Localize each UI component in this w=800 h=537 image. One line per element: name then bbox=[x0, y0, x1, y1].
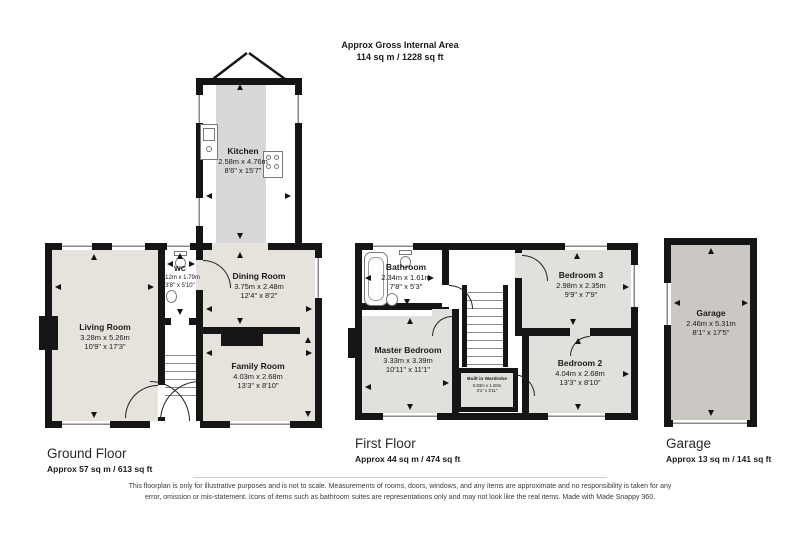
floor-area: Approx 44 sq m / 474 sq ft bbox=[355, 454, 460, 464]
measure-arrow-icon bbox=[365, 384, 371, 390]
floor-title: First Floor bbox=[355, 436, 460, 451]
hob-icon bbox=[274, 155, 279, 160]
window-icon bbox=[112, 243, 145, 250]
room-imperial: 12'4" x 8'2" bbox=[233, 291, 286, 301]
chimney-breast-living bbox=[39, 316, 58, 350]
room-metric: 4.04m x 2.68m bbox=[555, 369, 605, 379]
room-name: Bedroom 3 bbox=[556, 270, 606, 281]
room-label-bedroom3: Bedroom 3 2.98m x 2.35m 9'9" x 7'9" bbox=[556, 270, 606, 300]
room-label-bathroom: Bathroom 2.34m x 1.61m 7'8" x 5'3" bbox=[381, 262, 431, 292]
room-metric: 1.12m x 1.79m bbox=[160, 275, 200, 283]
room-metric: 3.75m x 2.48m bbox=[233, 282, 286, 292]
measure-arrow-icon bbox=[305, 337, 311, 343]
measure-arrow-icon bbox=[177, 309, 183, 315]
room-name: Master Bedroom bbox=[374, 345, 441, 356]
window-icon bbox=[315, 258, 322, 298]
measure-arrow-icon bbox=[91, 412, 97, 418]
measure-arrow-icon bbox=[91, 254, 97, 260]
room-name: Dining Room bbox=[233, 271, 286, 282]
hob-icon bbox=[274, 164, 279, 169]
room-imperial: 8'6" x 15'7" bbox=[218, 166, 268, 176]
sink-icon bbox=[386, 293, 398, 306]
gross-area-title: Approx Gross Internal Area bbox=[0, 39, 800, 51]
measure-arrow-icon bbox=[237, 318, 243, 324]
measure-arrow-icon bbox=[570, 319, 576, 325]
window-icon bbox=[631, 265, 638, 307]
disclaimer-text: This floorplan is only for illustrative … bbox=[125, 482, 675, 504]
window-icon bbox=[167, 243, 190, 250]
room-metric: 2.98m x 2.35m bbox=[556, 281, 606, 291]
wc-door-opening bbox=[171, 318, 189, 325]
room-label-wardrobe: Built in Wardrobe 0.93m x 1.20m 3'1" x 3… bbox=[467, 377, 507, 394]
room-label-garage: Garage 2.46m x 5.31m 8'1" x 17'5" bbox=[686, 308, 736, 338]
room-name: Kitchen bbox=[218, 146, 268, 157]
measure-arrow-icon bbox=[306, 306, 312, 312]
garage-label: Garage Approx 13 sq m / 141 sq ft bbox=[666, 436, 771, 464]
bathroom-door-opening bbox=[442, 285, 449, 307]
window-icon bbox=[196, 95, 203, 123]
measure-arrow-icon bbox=[623, 284, 629, 290]
room-imperial: 13'3" x 8'10" bbox=[555, 378, 605, 388]
room-imperial: 7'8" x 5'3" bbox=[381, 282, 431, 292]
measure-arrow-icon bbox=[674, 300, 680, 306]
room-imperial: 9'9" x 7'9" bbox=[556, 290, 606, 300]
sink-icon bbox=[166, 290, 177, 303]
room-imperial: 3'8" x 5'10" bbox=[160, 283, 200, 291]
measure-arrow-icon bbox=[404, 299, 410, 305]
measure-arrow-icon bbox=[742, 300, 748, 306]
ground-floor-label: Ground Floor Approx 57 sq m / 613 sq ft bbox=[47, 446, 152, 474]
room-name: Family Room bbox=[231, 361, 284, 372]
room-label-dining: Dining Room 3.75m x 2.48m 12'4" x 8'2" bbox=[233, 271, 286, 301]
room-metric: 3.28m x 5.26m bbox=[79, 333, 130, 343]
room-metric: 2.58m x 4.76m bbox=[218, 157, 268, 167]
room-name: Bedroom 2 bbox=[555, 358, 605, 369]
measure-arrow-icon bbox=[365, 275, 371, 281]
measure-arrow-icon bbox=[306, 350, 312, 356]
bedroom2-door-opening bbox=[570, 328, 590, 336]
french-doors-icon bbox=[196, 50, 302, 80]
measure-arrow-icon bbox=[407, 318, 413, 324]
measure-arrow-icon bbox=[177, 253, 183, 259]
measure-arrow-icon bbox=[407, 404, 413, 410]
window-icon bbox=[565, 243, 607, 250]
room-label-living: Living Room 3.28m x 5.26m 10'9" x 17'3" bbox=[79, 322, 130, 352]
bedroom2-left-wall bbox=[522, 336, 529, 413]
measure-arrow-icon bbox=[148, 284, 154, 290]
room-metric: 3.33m x 3.39m bbox=[374, 356, 441, 366]
window-icon bbox=[383, 413, 437, 420]
measure-arrow-icon bbox=[206, 350, 212, 356]
room-metric: 4.03m x 2.68m bbox=[231, 372, 284, 382]
room-metric: 2.46m x 5.31m bbox=[686, 319, 736, 329]
room-label-bedroom2: Bedroom 2 4.04m x 2.68m 13'3" x 8'10" bbox=[555, 358, 605, 388]
measure-arrow-icon bbox=[443, 380, 449, 386]
measure-arrow-icon bbox=[237, 252, 243, 258]
window-icon bbox=[373, 243, 413, 250]
floor-area: Approx 57 sq m / 613 sq ft bbox=[47, 464, 152, 474]
room-imperial: 10'11" x 11'1" bbox=[374, 365, 441, 375]
window-icon bbox=[295, 95, 302, 123]
window-icon bbox=[196, 198, 203, 226]
measure-arrow-icon bbox=[237, 233, 243, 239]
floor-area: Approx 13 sq m / 141 sq ft bbox=[666, 454, 771, 464]
room-label-wc: WC 1.12m x 1.79m 3'8" x 5'10" bbox=[160, 266, 200, 290]
window-icon bbox=[62, 243, 92, 250]
window-icon bbox=[548, 413, 605, 420]
room-imperial: 13'3" x 8'10" bbox=[231, 381, 284, 391]
room-label-family: Family Room 4.03m x 2.68m 13'3" x 8'10" bbox=[231, 361, 284, 391]
room-imperial: 10'9" x 17'3" bbox=[79, 342, 130, 352]
master-door-opening bbox=[432, 309, 452, 316]
window-icon bbox=[230, 421, 290, 428]
window-icon bbox=[664, 283, 671, 325]
kitchen-sink-icon bbox=[203, 128, 215, 141]
measure-arrow-icon bbox=[285, 193, 291, 199]
window-icon bbox=[62, 421, 110, 428]
garage-door bbox=[673, 420, 747, 427]
floorplan-page: Approx Gross Internal Area 114 sq m / 12… bbox=[0, 0, 800, 537]
measure-arrow-icon bbox=[575, 404, 581, 410]
measure-arrow-icon bbox=[305, 411, 311, 417]
gross-area-value: 114 sq m / 1228 sq ft bbox=[0, 51, 800, 63]
room-name: Living Room bbox=[79, 322, 130, 333]
room-label-master: Master Bedroom 3.33m x 3.39m 10'11" x 11… bbox=[374, 345, 441, 375]
bedroom3-door-opening bbox=[515, 253, 522, 278]
measure-arrow-icon bbox=[237, 84, 243, 90]
kitchen-sink-icon bbox=[206, 146, 212, 152]
kitchen-dining-opening bbox=[212, 243, 268, 250]
room-name: Garage bbox=[686, 308, 736, 319]
measure-arrow-icon bbox=[623, 371, 629, 377]
measure-arrow-icon bbox=[575, 338, 581, 344]
room-imperial: 3'1" x 3'11" bbox=[467, 388, 507, 393]
first-floor-label: First Floor Approx 44 sq m / 474 sq ft bbox=[355, 436, 460, 464]
room-metric: 2.34m x 1.61m bbox=[381, 273, 431, 283]
room-name: WC bbox=[160, 266, 200, 275]
room-imperial: 8'1" x 17'5" bbox=[686, 328, 736, 338]
footer-divider bbox=[193, 477, 607, 478]
floor-title: Ground Floor bbox=[47, 446, 152, 461]
chimney-breast-dining bbox=[221, 327, 263, 346]
toilet-icon bbox=[399, 250, 412, 255]
dining-family-opening bbox=[300, 327, 315, 334]
master-chimney bbox=[348, 328, 362, 358]
room-label-kitchen: Kitchen 2.58m x 4.76m 8'6" x 15'7" bbox=[218, 146, 268, 176]
room-name: Bathroom bbox=[381, 262, 431, 273]
front-door-opening bbox=[150, 421, 200, 428]
floor-title: Garage bbox=[666, 436, 771, 451]
measure-arrow-icon bbox=[55, 284, 61, 290]
measure-arrow-icon bbox=[708, 410, 714, 416]
measure-arrow-icon bbox=[708, 248, 714, 254]
measure-arrow-icon bbox=[574, 253, 580, 259]
page-title: Approx Gross Internal Area 114 sq m / 12… bbox=[0, 39, 800, 63]
measure-arrow-icon bbox=[206, 306, 212, 312]
measure-arrow-icon bbox=[206, 193, 212, 199]
